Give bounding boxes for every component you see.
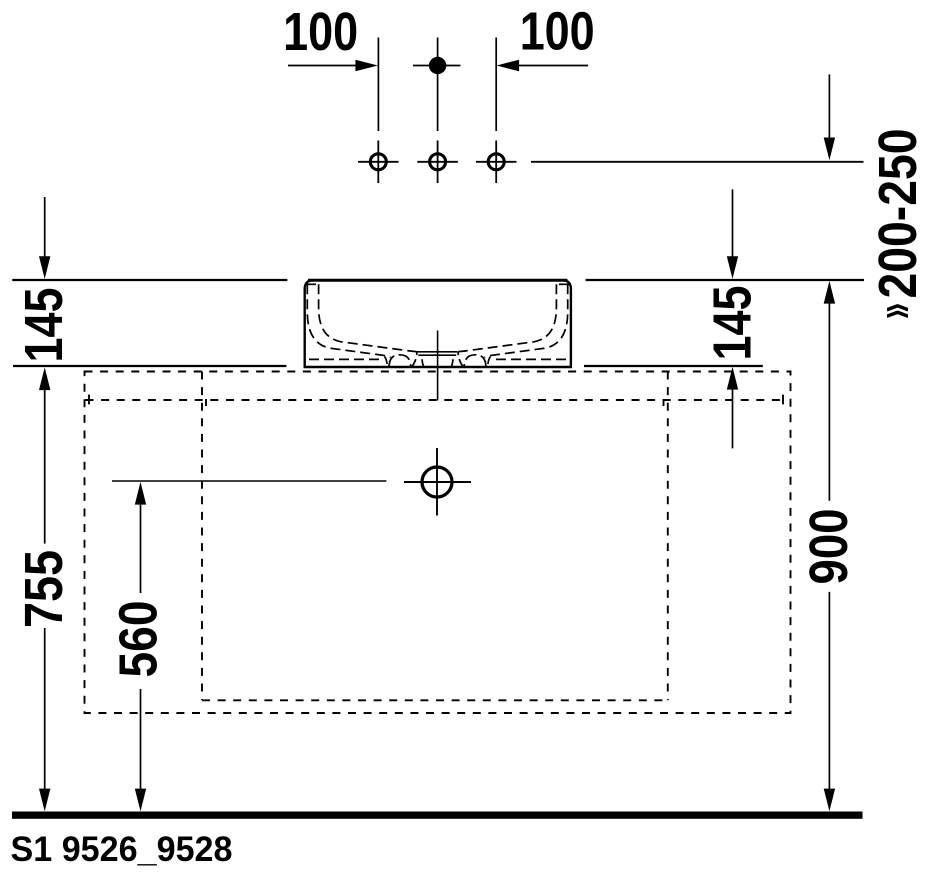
svg-text:145: 145 xyxy=(703,286,763,361)
svg-text:145: 145 xyxy=(14,288,74,363)
svg-text:100: 100 xyxy=(283,2,358,62)
svg-text:100: 100 xyxy=(520,2,595,62)
svg-text:755: 755 xyxy=(14,550,74,628)
svg-text:»: » xyxy=(864,303,924,319)
svg-text:S1 9526_9528: S1 9526_9528 xyxy=(11,830,233,869)
svg-text:200-250: 200-250 xyxy=(868,129,928,299)
svg-text:560: 560 xyxy=(109,601,169,678)
svg-text:900: 900 xyxy=(799,509,859,585)
